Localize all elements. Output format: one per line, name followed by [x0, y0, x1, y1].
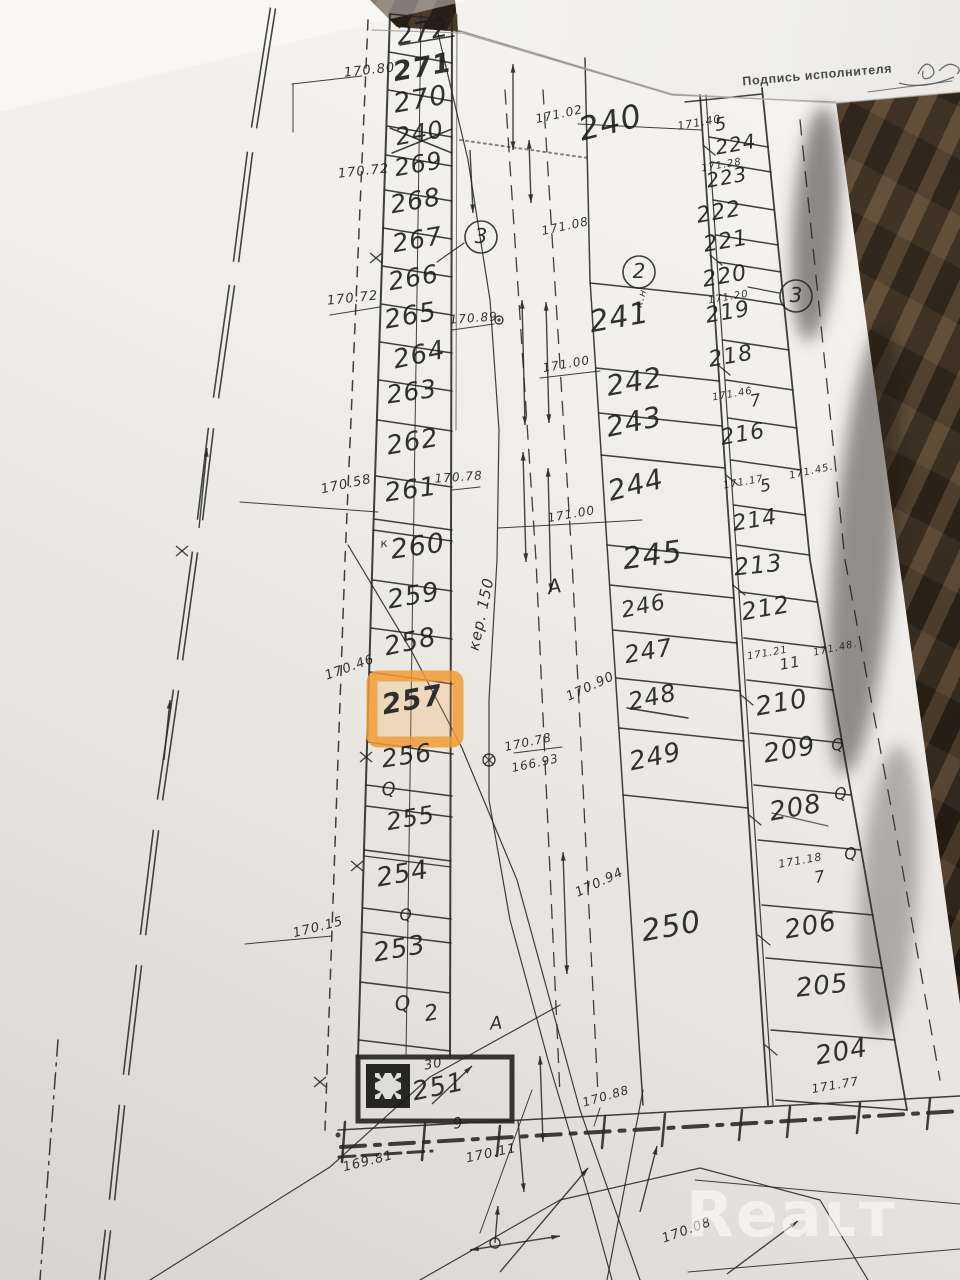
mark-label: Q [843, 843, 860, 864]
powerline-double-line [99, 1230, 105, 1280]
elev-label: 170.88 [581, 1083, 631, 1110]
plot-label: 265 [382, 297, 439, 336]
plan-line [731, 460, 801, 470]
elev-label: 171.17 [722, 474, 764, 492]
plan-line [458, 30, 960, 103]
arrowhead-icon [522, 416, 527, 425]
executor-signature [899, 64, 959, 85]
plan-line [662, 1114, 665, 1146]
elev-label: 171.08 [540, 214, 590, 238]
plot-label: 262 [384, 423, 441, 462]
plot-sm-label: 2 [422, 1000, 441, 1027]
building-outline [375, 1073, 401, 1099]
plot-label: 256 [380, 738, 434, 774]
plot-label: 267 [390, 221, 445, 258]
elev-label: 170.11 [465, 1141, 518, 1166]
plan-line [927, 1099, 930, 1129]
elev-label: 166.93 [510, 751, 560, 775]
plan-line [460, 140, 588, 158]
plot-label: 249 [626, 737, 684, 777]
elev-label: 170.58 [320, 472, 373, 497]
plot-label: 263 [385, 374, 439, 410]
plot-label: 218 [707, 340, 756, 372]
plot-label: 248 [626, 678, 680, 716]
plan-line [602, 1116, 605, 1148]
plan-line [765, 1045, 777, 1055]
arrow-line [470, 1236, 560, 1250]
plot-label: 264 [390, 335, 448, 375]
plan-line [452, 487, 480, 490]
elev-label: 170.78 [434, 468, 483, 485]
plot-sm-label: 9 [451, 1113, 465, 1133]
elev-label: 169.81 [341, 1148, 395, 1175]
plot-label: 204 [813, 1033, 870, 1072]
arrowhead-icon [546, 468, 551, 477]
note-label: А [543, 573, 564, 600]
plan-line [422, 1124, 425, 1160]
plan-line [359, 1040, 450, 1051]
plan-line [40, 1040, 58, 1280]
arrowhead-icon [652, 1146, 657, 1155]
plot-label: 210 [753, 684, 810, 723]
arrowhead-icon [470, 204, 475, 213]
plot-label: 247 [622, 633, 675, 669]
plan-line [623, 795, 748, 808]
plot-label: 260 [389, 527, 447, 565]
plan-line [749, 815, 761, 825]
powerline-double-line [251, 8, 270, 128]
elev-label: 171.00 [546, 503, 596, 525]
plot-label: 242 [604, 360, 665, 402]
survey-point-icon [336, 1133, 341, 1138]
mark-label: Q [398, 904, 414, 925]
mark-label: Q [393, 990, 413, 1016]
arrowhead-icon [561, 852, 566, 861]
powerline-double-line [115, 1105, 125, 1200]
plot-label: 213 [732, 549, 783, 582]
elev-label: 171.45. [788, 461, 834, 481]
plot-label: 255 [384, 800, 437, 836]
powerline-double-line [105, 1230, 111, 1280]
elev-label: 170.72 [337, 161, 390, 181]
plot-label: 246 [619, 590, 668, 624]
arrowhead-icon [564, 965, 569, 974]
plan-line [688, 1249, 960, 1272]
circled-number-label: 3 [475, 224, 488, 248]
plot-label: 243 [603, 400, 665, 444]
plan-line [787, 1107, 790, 1137]
plan-line [341, 1111, 960, 1147]
plot-label: 250 [639, 904, 704, 949]
plan-line [607, 1090, 643, 1280]
plot-sm-label: 7 [813, 866, 827, 887]
mark-label: Q [833, 783, 850, 804]
plot-label: 205 [794, 968, 849, 1003]
plan-line [741, 695, 753, 705]
plot-label: 216 [719, 418, 768, 450]
plot-label: 244 [604, 462, 667, 508]
elev-label: 170.94 [573, 865, 626, 900]
elev-label: 171.00 [541, 353, 591, 375]
elev-label: 171.46 [711, 386, 753, 404]
plot-label: 272 [394, 13, 451, 52]
note-label: А [488, 1012, 504, 1034]
arrowhead-icon [511, 64, 516, 73]
plot-label: 269 [392, 146, 445, 182]
plan-line [857, 1103, 860, 1133]
plan-line [594, 1108, 600, 1126]
arrowhead-icon [546, 414, 551, 423]
arrowhead-icon [540, 1133, 545, 1142]
arrowhead-icon [520, 300, 525, 309]
plot-label: 209 [761, 731, 818, 770]
plan-line [758, 935, 770, 945]
plot-sm-label: 30 [423, 1056, 444, 1074]
arrow-line [518, 1120, 524, 1192]
plot-label: 212 [739, 590, 792, 626]
arrowhead-icon [538, 1056, 543, 1065]
arrow-line [548, 468, 551, 592]
arrow-line [470, 150, 473, 213]
plan-line [366, 785, 452, 796]
plot-label: 208 [767, 789, 824, 828]
plan-line [610, 585, 734, 598]
plan-line [585, 58, 643, 1105]
powerline-double-line [197, 428, 208, 520]
plan-line [240, 502, 378, 512]
elev-label: 170.72 [326, 288, 379, 308]
plot-label: 220 [701, 260, 750, 292]
plot-label: 258 [381, 622, 439, 662]
arrow-line [500, 1168, 588, 1272]
photo-of-plan: { "colors":{"ink":"#262626","paper":"#ef… [0, 0, 960, 1280]
mark-label: Q [380, 778, 398, 801]
plot-label: 206 [782, 907, 839, 946]
plot-label: 214 [731, 504, 780, 536]
arrowhead-icon [523, 553, 528, 562]
plot-label: 245 [620, 534, 685, 577]
plan-line [748, 287, 779, 293]
note-label: к [379, 536, 389, 551]
elev-label: 170.78 [503, 730, 553, 754]
elev-label: 171.77 [810, 1074, 860, 1096]
plot-label: 266 [386, 259, 441, 296]
arrowhead-icon [521, 452, 526, 461]
arrow-line [523, 452, 526, 562]
plot-label: 251 [409, 1067, 467, 1107]
plot-label: 268 [388, 182, 443, 219]
plan-line [590, 283, 713, 296]
realt-watermark: Reaʟᴛ [686, 1178, 897, 1251]
plan-line [450, 14, 452, 1057]
arrowhead-icon [527, 140, 532, 149]
plan-line [619, 728, 744, 741]
arrow-line [540, 1056, 543, 1142]
arrowhead-icon [544, 302, 549, 311]
plan-line [245, 936, 332, 944]
plan-line [739, 1110, 742, 1140]
plan-line [601, 455, 725, 468]
plot-label: 253 [371, 930, 428, 969]
plot-label: 254 [374, 855, 431, 894]
plan-line [456, 14, 457, 430]
elev-label: 170.90 [564, 669, 617, 704]
arrowhead-icon [528, 194, 533, 203]
powerline-double-line [109, 1105, 119, 1200]
plot-label: 261 [383, 472, 439, 509]
circled-number-label: 2 [633, 259, 646, 283]
powerline-double-line [257, 8, 276, 128]
plot-label: 222 [695, 196, 744, 228]
arrow-line [563, 852, 567, 974]
